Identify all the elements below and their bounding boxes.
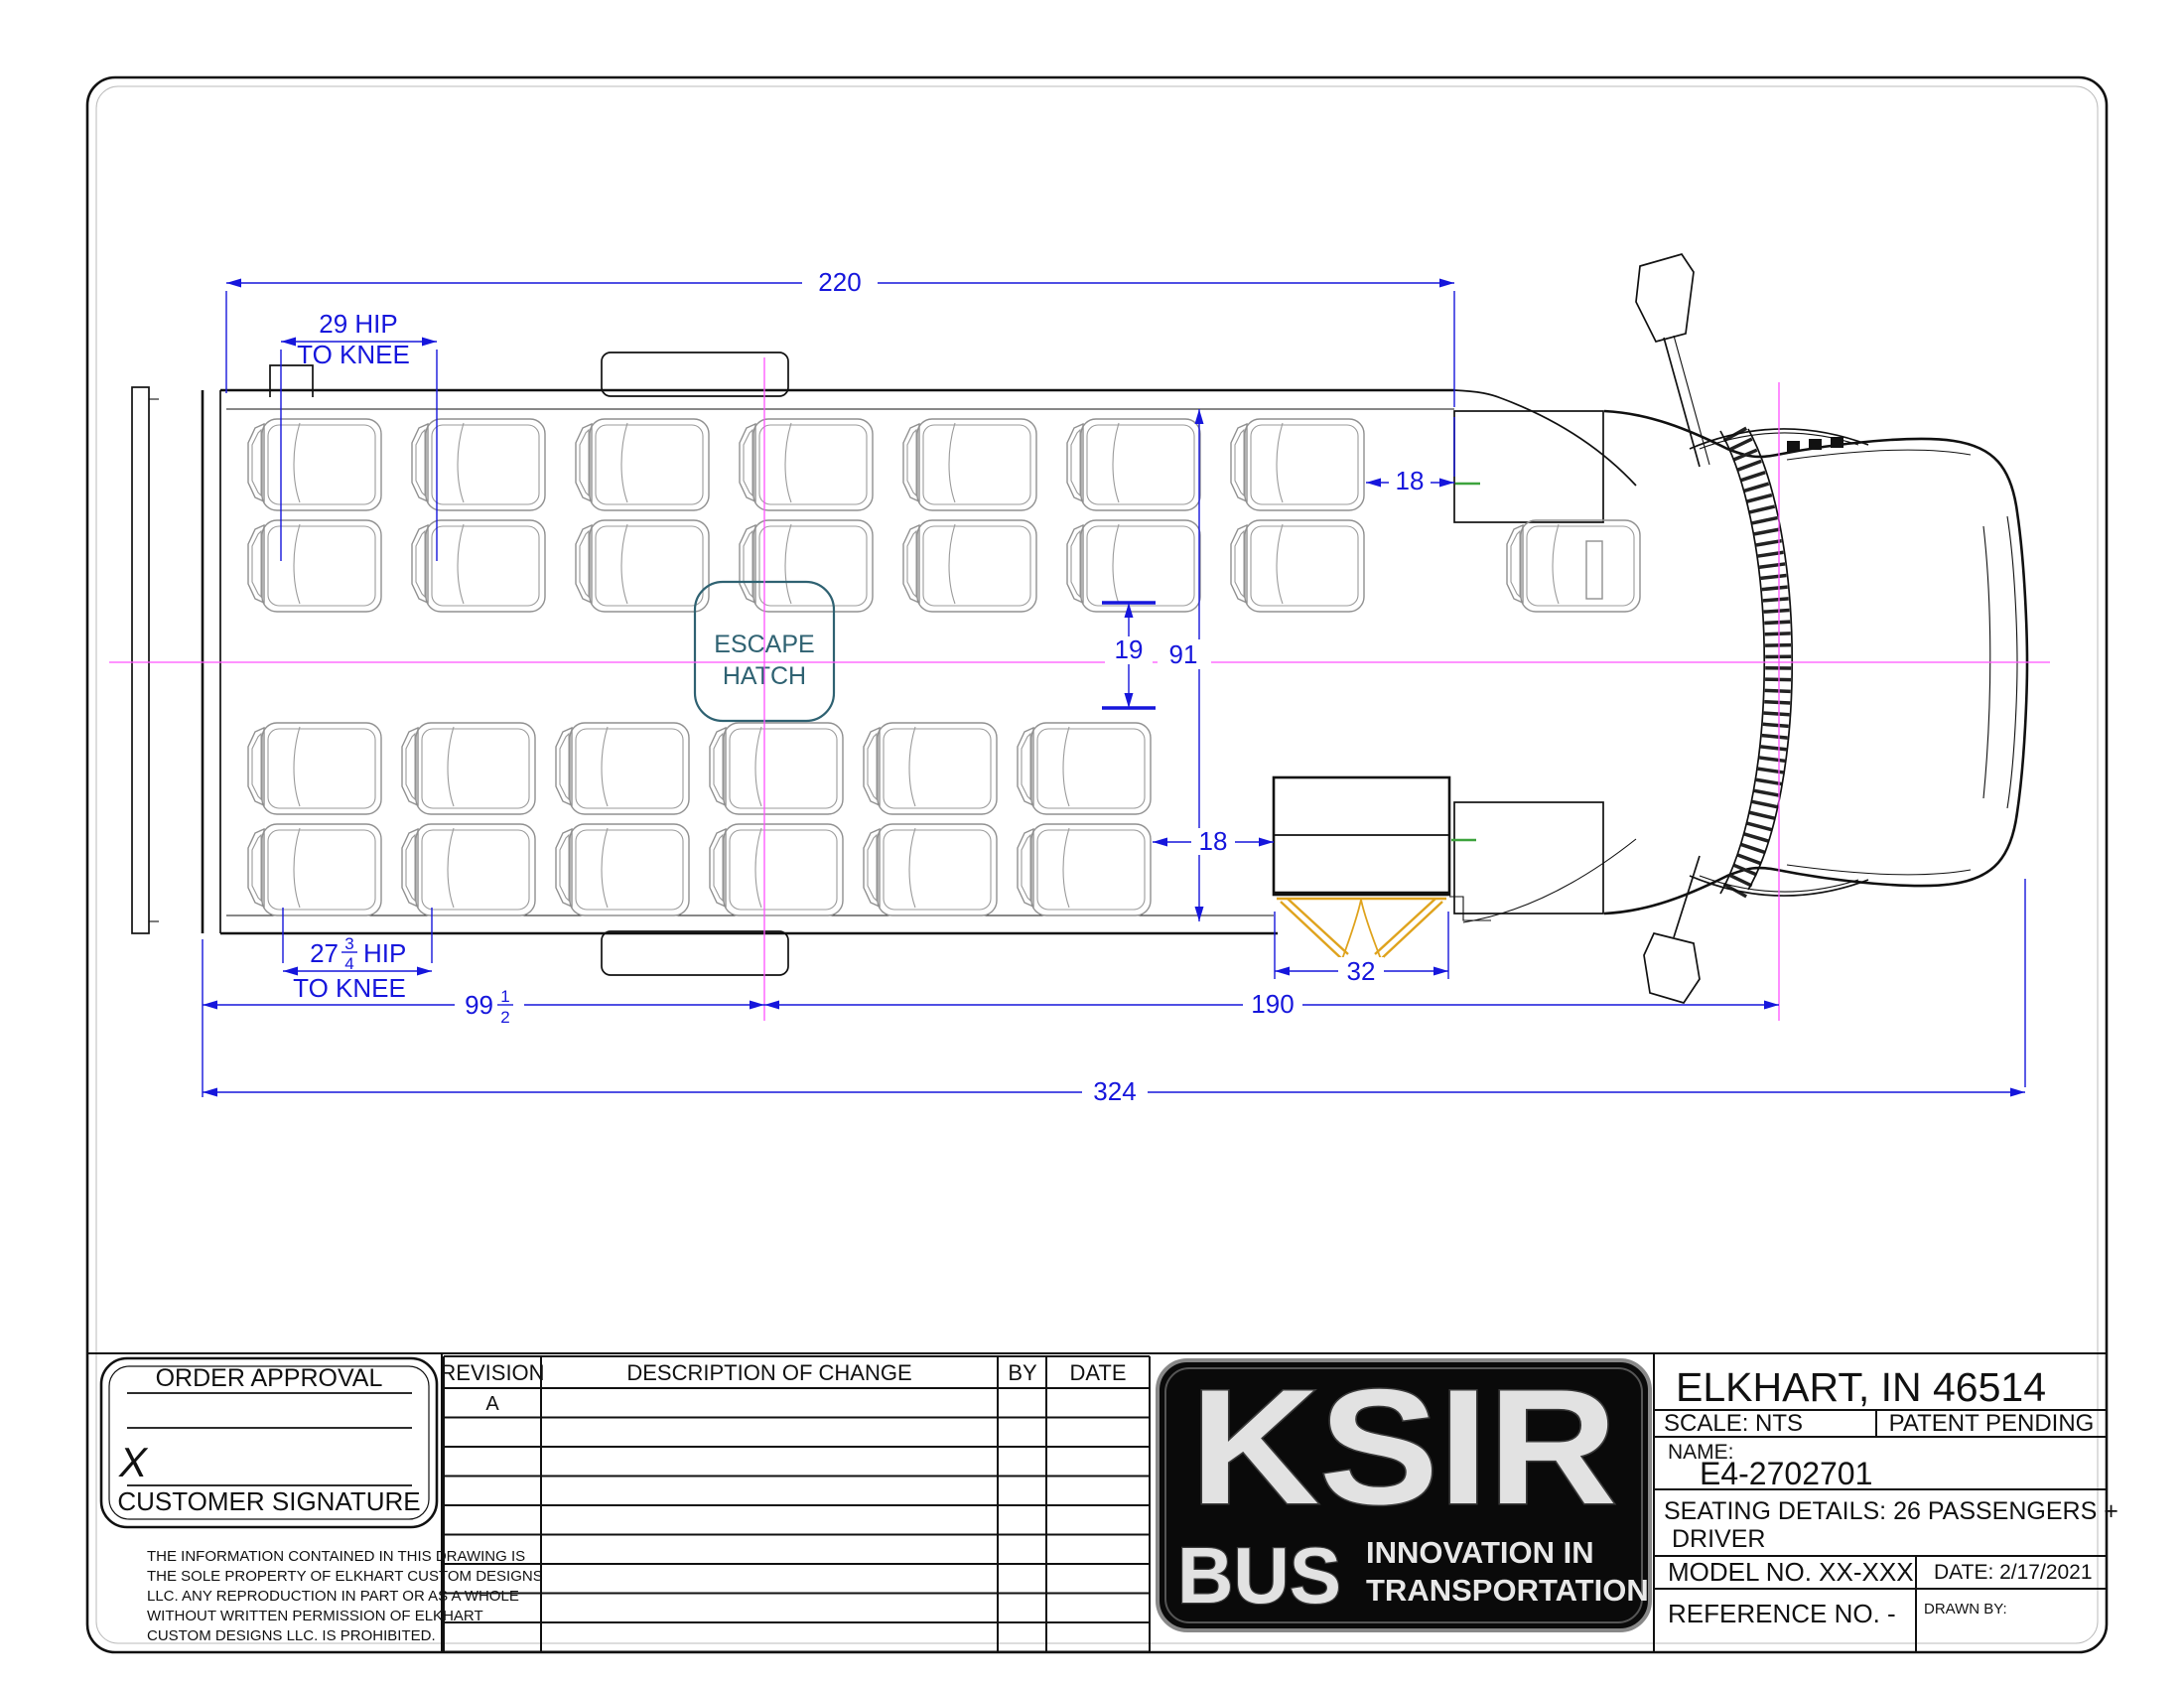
- dimension-lines: [203, 279, 2025, 1098]
- passenger-seat: [864, 824, 997, 915]
- svg-text:DATE: DATE: [1069, 1360, 1126, 1385]
- dim-gap-door: 18: [1199, 826, 1228, 856]
- scale-label: SCALE: NTS: [1664, 1410, 1803, 1437]
- svg-text:REVISION: REVISION: [440, 1360, 544, 1385]
- hood-line-top: [1787, 450, 1971, 460]
- svg-text:THE INFORMATION CONTAINED IN T: THE INFORMATION CONTAINED IN THIS DRAWIN…: [147, 1548, 525, 1565]
- passenger-seat: [576, 419, 709, 510]
- cab-transition-bottom: [1463, 839, 1636, 922]
- passenger-seat: [402, 824, 535, 915]
- revision-table-headers: REVISION DESCRIPTION OF CHANGE BY DATE: [440, 1360, 1126, 1385]
- drawing-info-block: ELKHART, IN 46514 SCALE: NTS PATENT PEND…: [1654, 1353, 2118, 1652]
- order-approval-box: ORDER APPROVAL X CUSTOMER SIGNATURE: [101, 1358, 437, 1527]
- passenger-seat: [710, 824, 843, 915]
- passenger-seat: [556, 723, 689, 814]
- cab-cowl-top: [1454, 411, 1603, 522]
- passenger-seat: [576, 520, 709, 612]
- side-mirror-bottom: [1644, 856, 1700, 1003]
- svg-text:CUSTOM DESIGNS LLC. IS PROHIBI: CUSTOM DESIGNS LLC. IS PROHIBITED.: [147, 1627, 436, 1644]
- passenger-seat: [556, 824, 689, 915]
- dim-door-opening: 32: [1347, 956, 1376, 986]
- passenger-seat: [1018, 723, 1151, 814]
- reference-number: REFERENCE NO. -: [1668, 1599, 1896, 1628]
- dim-aisle: 19: [1115, 634, 1144, 664]
- passenger-seat: [903, 520, 1036, 612]
- revision-row-label: A: [485, 1393, 499, 1415]
- passenger-seat: [402, 723, 535, 814]
- logo-sub: BUS: [1177, 1531, 1341, 1619]
- revision-table: A: [444, 1356, 1150, 1652]
- seating-details-2: DRIVER: [1672, 1525, 1765, 1553]
- passenger-seat: [248, 520, 381, 612]
- svg-text:99: 99: [465, 990, 493, 1020]
- dim-mid-length: 190: [1251, 989, 1294, 1019]
- logo-tagline-1: INNOVATION IN: [1366, 1535, 1594, 1570]
- passenger-seat: [740, 520, 873, 612]
- customer-signature-label: CUSTOMER SIGNATURE: [117, 1486, 420, 1516]
- svg-text:LLC. ANY REPRODUCTION IN PART: LLC. ANY REPRODUCTION IN PART OR AS A WH…: [147, 1588, 519, 1605]
- van-front: [1604, 254, 2027, 1003]
- ksir-logo: KSIR BUS INNOVATION IN TRANSPORTATION: [1158, 1355, 1650, 1630]
- passenger-seat: [248, 723, 381, 814]
- svg-text:THE SOLE PROPERTY OF ELKHART C: THE SOLE PROPERTY OF ELKHART CUSTOM DESI…: [147, 1568, 543, 1585]
- patent-pending: PATENT PENDING: [1889, 1410, 2095, 1437]
- cab-cowl-bottom: [1454, 802, 1603, 914]
- passenger-seat: [1018, 824, 1151, 915]
- clearance-light: [1809, 439, 1822, 450]
- svg-text:4: 4: [344, 954, 353, 973]
- dim-hip-top-label: TO KNEE: [297, 340, 410, 369]
- date: DATE: 2/17/2021: [1934, 1561, 2093, 1584]
- passenger-seat: [1231, 520, 1364, 612]
- model-number: MODEL NO. XX-XXX: [1668, 1557, 1914, 1587]
- passenger-seat: [248, 419, 381, 510]
- company-location: ELKHART, IN 46514: [1676, 1364, 2046, 1410]
- drawing-number: E4-2702701: [1700, 1456, 1872, 1491]
- logo-tagline-2: TRANSPORTATION: [1366, 1573, 1649, 1608]
- svg-text:BY: BY: [1008, 1360, 1037, 1385]
- passenger-seat: [1067, 419, 1200, 510]
- dim-hip-bottom: 27 3 4 HIP TO KNEE: [293, 934, 406, 1003]
- driver-armrest: [1586, 541, 1602, 599]
- rear-wheel-bottom: [602, 931, 788, 975]
- passenger-seat: [1067, 520, 1200, 612]
- rear-bumper: [132, 387, 149, 933]
- svg-text:3: 3: [344, 934, 353, 953]
- dim-body-length: 220: [818, 267, 861, 297]
- title-block: ORDER APPROVAL X CUSTOMER SIGNATURE THE …: [87, 1353, 2118, 1652]
- bus-top-view: ESCAPE HATCH: [132, 254, 2027, 1003]
- passenger-seat: [864, 723, 997, 814]
- drawn-by: DRAWN BY:: [1924, 1601, 2007, 1618]
- passenger-seat: [412, 520, 545, 612]
- svg-text:TO KNEE: TO KNEE: [293, 973, 406, 1003]
- signature-x-mark: X: [118, 1439, 149, 1485]
- driver-seat: [1507, 520, 1640, 612]
- svg-text:WITHOUT WRITTEN PERMISSION OF: WITHOUT WRITTEN PERMISSION OF ELKHART: [147, 1608, 483, 1624]
- hood-line-bottom: [1787, 865, 1971, 875]
- dim-interior-width: 91: [1169, 639, 1198, 669]
- passenger-seat: [710, 723, 843, 814]
- dimension-labels: 220 29 HIP TO KNEE 18 19 91 18 32 99 1 2…: [293, 267, 1431, 1106]
- svg-text:HIP: HIP: [363, 938, 406, 968]
- legal-text: THE INFORMATION CONTAINED IN THIS DRAWIN…: [147, 1548, 543, 1644]
- passenger-seat: [740, 419, 873, 510]
- svg-text:DESCRIPTION OF CHANGE: DESCRIPTION OF CHANGE: [626, 1360, 911, 1385]
- clearance-light: [1787, 441, 1800, 452]
- dim-gap-front: 18: [1396, 466, 1425, 495]
- svg-text:1: 1: [500, 987, 509, 1006]
- entry-door: [1274, 777, 1491, 959]
- passenger-seat: [1231, 419, 1364, 510]
- passenger-seat: [248, 824, 381, 915]
- rear-door-hinge: [270, 365, 313, 397]
- door-swing: [1277, 899, 1446, 959]
- dim-overall-length: 324: [1093, 1076, 1136, 1106]
- dim-hip-top: 29 HIP: [319, 309, 398, 339]
- seating-details-1: SEATING DETAILS: 26 PASSENGERS +: [1664, 1497, 2118, 1525]
- svg-text:27: 27: [310, 938, 339, 968]
- passenger-seat: [903, 419, 1036, 510]
- cab-transition-top: [1454, 390, 1636, 486]
- driver-seat-shape: [1507, 520, 1640, 612]
- dim-rear-to-hatch: 99 1 2: [455, 986, 524, 1027]
- passenger-seat: [412, 419, 545, 510]
- order-approval-title: ORDER APPROVAL: [156, 1364, 383, 1392]
- logo-brand: KSIR: [1190, 1355, 1617, 1538]
- door-step-edge: [1449, 897, 1491, 920]
- seating-plan-drawing: ESCAPE HATCH: [0, 0, 2184, 1688]
- svg-text:2: 2: [500, 1008, 509, 1027]
